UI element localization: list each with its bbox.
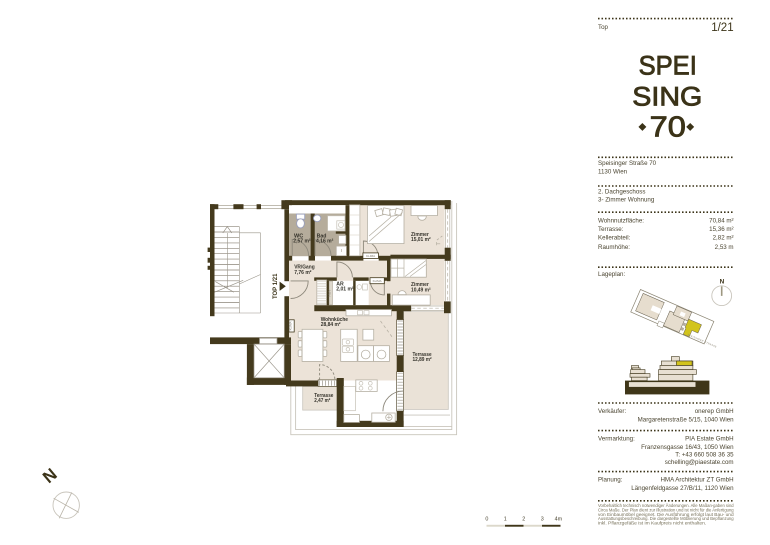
svg-text:HWV: HWV (328, 290, 332, 297)
svg-text:2,47 m²: 2,47 m² (314, 397, 330, 404)
svg-text:N: N (720, 278, 725, 285)
svg-text:70,84 m²: 70,84 m² (709, 217, 733, 224)
svg-text:2,57 m²: 2,57 m² (293, 238, 310, 245)
svg-text:Längenfeldgasse 27/B/11, 1120: Längenfeldgasse 27/B/11, 1120 Wien (631, 485, 734, 492)
svg-text:SPEI: SPEI (639, 51, 697, 81)
svg-text:4,16 m²: 4,16 m² (316, 238, 333, 245)
svg-text:28,84 m²: 28,84 m² (321, 321, 341, 328)
svg-text:KLIMA: KLIMA (373, 279, 382, 283)
svg-text:KLIMA: KLIMA (289, 321, 293, 330)
svg-text:1: 1 (504, 517, 507, 523)
svg-text:0: 0 (485, 517, 488, 523)
svg-text:Terrasse:: Terrasse: (598, 226, 624, 233)
svg-text:T: +43 660 508 36 35: T: +43 660 508 36 35 (675, 451, 734, 458)
svg-text:2. Dachgeschoss: 2. Dachgeschoss (598, 188, 645, 195)
svg-text:Speisinger Straße 70: Speisinger Straße 70 (598, 160, 657, 167)
svg-text:TOP 1/21: TOP 1/21 (273, 273, 279, 299)
svg-text:onerep GmbH: onerep GmbH (695, 408, 734, 415)
svg-text:Raumhöhe:: Raumhöhe: (598, 244, 630, 251)
svg-text:HMA Architektur ZT GmbH: HMA Architektur ZT GmbH (660, 477, 733, 484)
svg-text:15,01 m²: 15,01 m² (411, 236, 431, 243)
svg-text:PIA Estate GmbH: PIA Estate GmbH (685, 436, 734, 443)
svg-text:4m: 4m (555, 517, 563, 523)
svg-text:Kellerabteil:: Kellerabteil: (598, 235, 631, 242)
svg-text:Vermarktung:: Vermarktung: (598, 436, 635, 443)
svg-text:2: 2 (522, 517, 525, 523)
svg-text:KLIMA: KLIMA (366, 254, 375, 258)
svg-text:12,89 m²: 12,89 m² (413, 356, 432, 363)
svg-text:3- Zimmer Wohnung: 3- Zimmer Wohnung (598, 197, 655, 204)
svg-text:Franzensgasse 16/43, 1050 Wien: Franzensgasse 16/43, 1050 Wien (641, 444, 734, 451)
svg-text:1/21: 1/21 (711, 22, 733, 34)
svg-text:7,76 m²: 7,76 m² (294, 269, 311, 276)
svg-text:Top: Top (598, 24, 609, 31)
svg-text:15,36 m²: 15,36 m² (709, 226, 733, 233)
svg-text:2,82 m²: 2,82 m² (713, 235, 734, 242)
svg-text:70: 70 (650, 112, 686, 144)
svg-text:1130 Wien: 1130 Wien (598, 169, 628, 176)
svg-text:SING: SING (632, 82, 702, 112)
svg-text:Wohnnutzfläche:: Wohnnutzfläche: (598, 217, 644, 224)
svg-text:schelling@piaestate.com: schelling@piaestate.com (665, 459, 734, 466)
svg-text:2,53 m: 2,53 m (715, 244, 734, 251)
svg-text:Lageplan:: Lageplan: (598, 271, 625, 278)
svg-text:Planung:: Planung: (598, 477, 623, 484)
svg-text:Verkäufer:: Verkäufer: (598, 408, 626, 415)
svg-text:3: 3 (541, 517, 544, 523)
svg-text:Margaretenstraße 5/15, 1040 Wi: Margaretenstraße 5/15, 1040 Wien (638, 416, 735, 423)
svg-text:inkl. Pflanzgefäße ist im Kauf: inkl. Pflanzgefäße ist im Kaufpreis nich… (598, 521, 706, 527)
svg-text:10,49 m²: 10,49 m² (411, 286, 431, 293)
svg-text:2,01 m²: 2,01 m² (336, 286, 353, 293)
